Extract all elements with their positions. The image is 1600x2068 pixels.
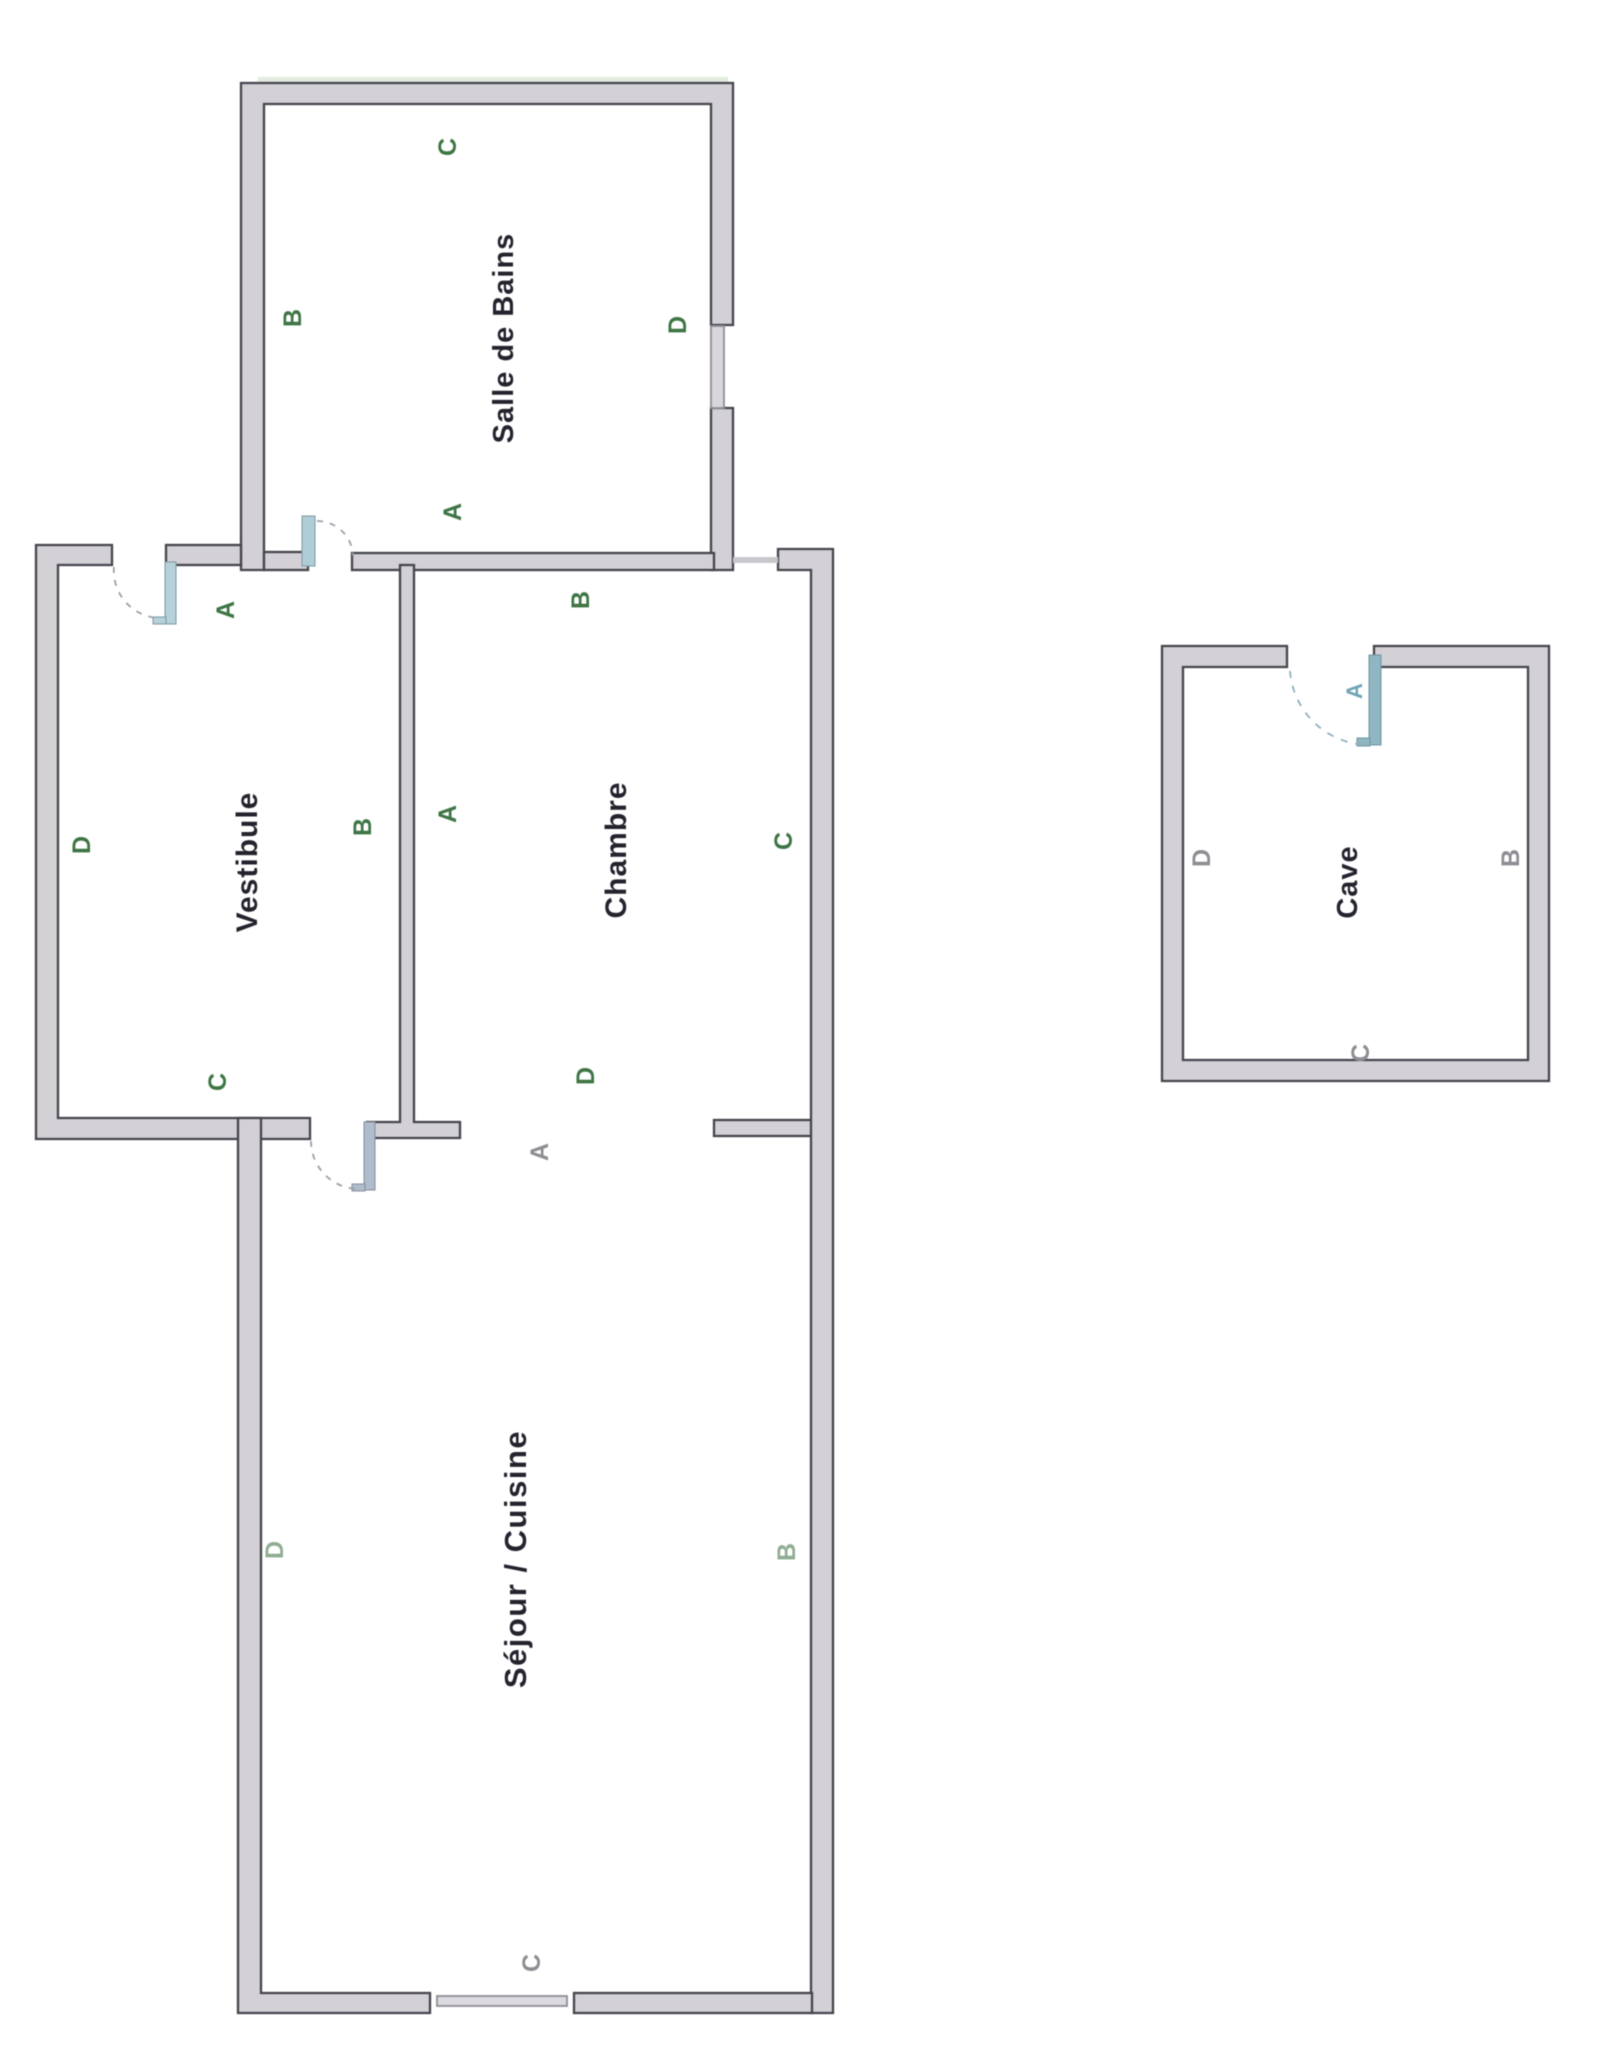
svg-text:D: D [572,1067,600,1085]
svg-text:Vestibule: Vestibule [231,792,264,933]
svg-text:B: B [1497,849,1525,867]
svg-text:A: A [439,503,467,521]
svg-text:D: D [68,836,96,854]
svg-text:Cave: Cave [1332,845,1364,918]
svg-text:B: B [567,591,595,609]
svg-text:C: C [770,832,798,850]
svg-text:B: B [349,818,377,836]
svg-text:D: D [261,1541,289,1559]
svg-text:C: C [434,138,462,156]
svg-text:C: C [518,1954,546,1972]
svg-text:D: D [1188,849,1216,867]
svg-text:Chambre: Chambre [600,781,633,918]
svg-text:Salle de Bains: Salle de Bains [488,233,520,444]
svg-text:D: D [664,316,692,334]
svg-text:A: A [212,601,240,619]
svg-text:B: B [279,309,307,327]
svg-text:A: A [1342,683,1367,699]
svg-text:Séjour / Cuisine: Séjour / Cuisine [498,1430,533,1688]
svg-text:B: B [773,1543,801,1561]
svg-text:C: C [1347,1044,1375,1062]
svg-text:A: A [526,1143,554,1161]
svg-text:A: A [434,805,462,823]
svg-text:C: C [204,1073,232,1091]
